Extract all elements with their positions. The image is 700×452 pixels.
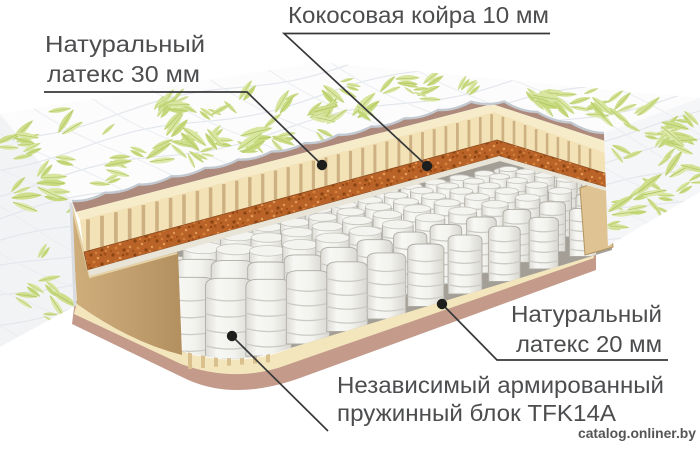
svg-text:Натуральный: Натуральный — [45, 31, 205, 57]
svg-text:латекс 30 мм: латекс 30 мм — [47, 61, 200, 87]
svg-text:Натуральный: Натуральный — [511, 301, 662, 327]
svg-text:Независимый армированный: Независимый армированный — [337, 372, 664, 398]
svg-text:латекс 20 мм: латекс 20 мм — [516, 331, 662, 357]
svg-text:catalog.onliner.by: catalog.onliner.by — [578, 426, 697, 441]
svg-text:пружинный блок TFK14A: пружинный блок TFK14A — [337, 400, 616, 426]
svg-text:Кокосовая койра 10 мм: Кокосовая койра 10 мм — [288, 2, 549, 28]
